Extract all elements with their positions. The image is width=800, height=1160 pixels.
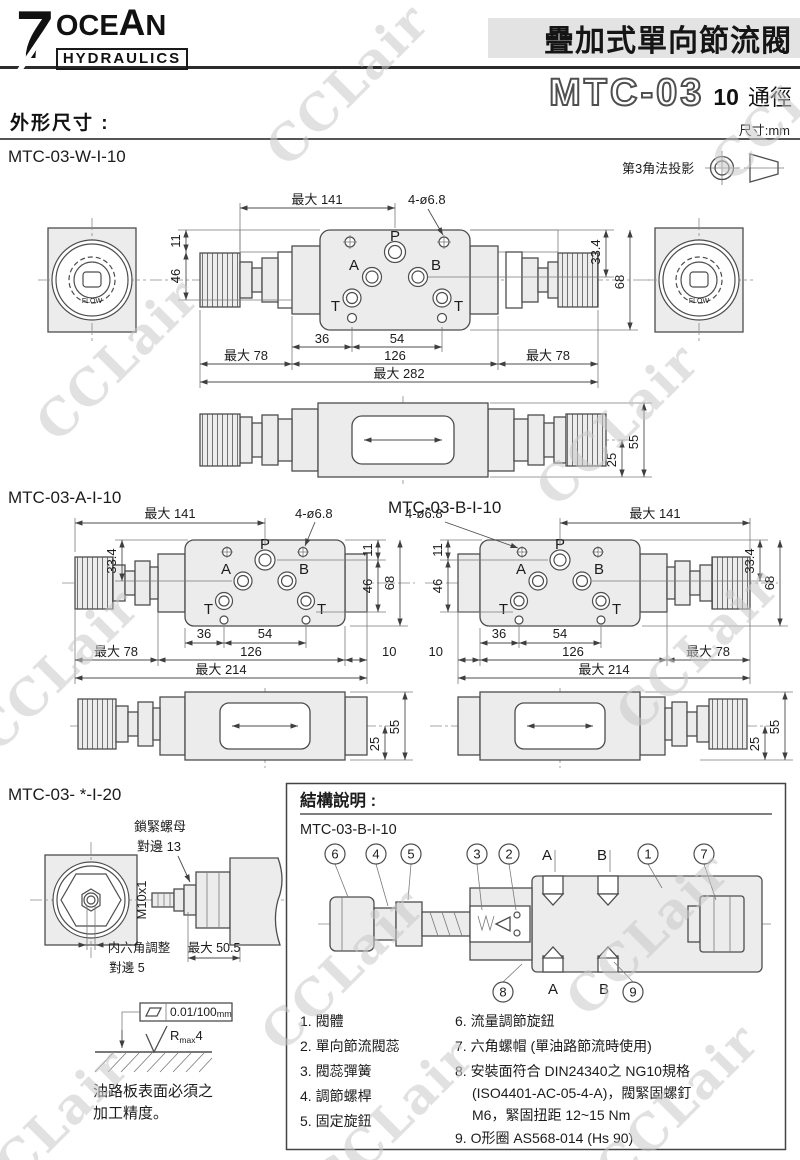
technical-drawings: MTC-03-W-I-10 第3角法投影 [0,0,800,1160]
dim-33-4: 33.4 [742,548,757,573]
logo-seven: 7 [16,6,54,64]
dim-46: 46 [430,579,445,593]
part-item: 8. 安裝面符合 DIN24340之 NG10規格 [455,1063,690,1079]
balloon-6: 6 [331,847,338,862]
dim-11: 11 [168,234,183,248]
dim-10: 10 [382,644,396,659]
dim-11: 11 [360,543,375,557]
surface-note-line2: 加工精度。 [93,1105,168,1122]
dim-54: 54 [390,331,404,346]
dim-55: 55 [767,720,782,734]
projection-label: 第3角法投影 [622,161,694,176]
adj-side-view [140,858,298,945]
balloon-4: 4 [372,847,379,862]
lock-nut-label: 鎖緊螺母 [134,819,186,834]
dim-25: 25 [367,737,382,751]
across-flats-5-label: 對邊 5 [109,961,144,975]
logo-subtitle: HYDRAULICS [56,48,188,70]
balloon-2: 2 [505,847,512,862]
balloon-5: 5 [407,847,414,862]
balloon-7: 7 [700,847,707,862]
dim-46: 46 [168,269,183,283]
w-side-view: 25 55 [200,396,652,484]
part-item: 5. 固定旋鈕 [300,1113,372,1129]
section-title-outline-dims: 外形尺寸 : [10,108,110,135]
dim-68: 68 [762,576,777,590]
drawing-w: MTC-03-W-I-10 第3角法投影 [8,147,784,484]
model-number: MTC-03 [549,72,704,115]
part-item: 7. 六角螺帽 (單油路節流時使用) [455,1038,652,1054]
port-t-label: T [612,601,621,618]
bore-size: 10 [713,84,739,111]
port-a-label: A [516,561,526,578]
port-t-label: T [331,298,340,315]
dim-max78: 最大 78 [224,348,268,363]
catalog-page: 7 OCEAN HYDRAULICS 疊加式單向節流閥 MTC-03 10 通徑… [0,0,800,1160]
dim-max141: 最大 141 [144,506,195,521]
brand-logo: 7 OCEAN HYDRAULICS [16,6,188,70]
dim-126: 126 [384,348,406,363]
part-item: 6. 流量調節旋鈕 [455,1013,555,1029]
dim-126: 126 [562,644,584,659]
dim-max78: 最大 78 [526,348,570,363]
dim-max78: 最大 78 [686,644,730,659]
structure-heading: 結構說明 : [300,790,376,810]
dim-max214: 最大 214 [195,662,246,677]
w-top-view: P A B T T [150,228,650,330]
dim-36: 36 [315,331,329,346]
dim-holes: 4-ø6.8 [295,506,333,521]
unit-note: 尺寸:mm [739,120,790,139]
part-item: 9. O形圈 AS568-014 (Hs 90) [455,1130,633,1146]
knob-flow-text: FLOW [689,298,710,305]
port-b-label: B [594,561,604,578]
balloon-8: 8 [499,985,506,1000]
w-right-end-view: FLOW [645,218,753,342]
surface-note-line1: 油路板表面必須之 [93,1082,213,1100]
dim-10: 10 [429,644,443,659]
surface-finish-note: 0.01/100mm Rmax4 油路板表面必須之 [93,1003,232,1122]
third-angle-projection-symbol: 第3角法投影 [622,151,784,185]
port-t-label: T [454,298,463,315]
dim-max141: 最大 141 [291,192,342,207]
dim-68: 68 [382,576,397,590]
dim-33-4: 33.4 [104,548,119,573]
port-b-label: B [299,561,309,578]
port-a-label: A [349,257,359,274]
section-port-b: B [599,981,609,998]
section-port-b: B [597,847,607,864]
logo-ocean-text: OCEAN [56,8,188,46]
port-t-label: T [204,601,213,618]
part-item: (ISO4401-AC-05-4-A)，閥緊固螺釘 [472,1085,691,1101]
part-item: 1. 閥體 [300,1013,344,1029]
balloon-1: 1 [644,847,651,862]
part-item: M6，緊固扭距 12~15 Nm [472,1107,630,1123]
structure-box: 結構說明 : MTC-03-B-I-10 [287,784,786,1150]
part-item: 2. 單向節流閥蕊 [300,1038,400,1054]
dim-68: 68 [612,275,627,289]
dim-holes: 4-ø6.8 [408,192,446,207]
dim-36: 36 [197,626,211,641]
structure-model: MTC-03-B-I-10 [300,822,397,838]
drawing-a: MTC-03-A-I-10 [8,488,415,768]
hex-adjust-label: 内六角調整 [108,940,171,955]
dim-54: 54 [553,626,567,641]
dim-36: 36 [492,626,506,641]
port-a-label: A [221,561,231,578]
dim-holes: 4-ø6.8 [405,506,443,521]
bore-unit: 通徑 [748,80,792,112]
hatch-lines [95,1053,212,1072]
balloon-3: 3 [473,847,480,862]
dim-max505: 最大 50.5 [188,941,241,955]
section-port-a: A [548,981,558,998]
balloon-9: 9 [629,985,636,1000]
section-port-a: A [542,847,552,864]
knob-flow-text: FLOW [82,298,103,305]
thread-label: M10x1 [134,880,149,919]
drawing-w-label: MTC-03-W-I-10 [8,147,126,166]
port-b-label: B [431,257,441,274]
across-flats-13-label: 對邊 13 [137,839,181,854]
drawing-a-label: MTC-03-A-I-10 [8,488,121,507]
a-side-view: 25 55 [70,688,413,768]
dim-55: 55 [387,720,402,734]
drawing-adjuster: MTC-03- *-I-20 [8,785,298,1122]
dim-54: 54 [258,626,272,641]
w-left-end-view: FLOW [38,218,146,342]
dim-55: 55 [626,435,641,449]
dim-max141: 最大 141 [629,506,680,521]
dim-max78: 最大 78 [94,644,138,659]
part-item: 3. 閥蕊彈簧 [300,1063,372,1079]
port-t-label: T [317,601,326,618]
b-side-view: 25 55 [430,688,793,768]
dim-126: 126 [240,644,262,659]
port-t-label: T [499,601,508,618]
drawing-b: MTC-03-B-I-10 [388,498,793,768]
dim-25: 25 [747,737,762,751]
dim-11: 11 [430,543,445,557]
model-title: MTC-03 10 通徑 [549,72,792,115]
dim-25: 25 [604,453,619,467]
dim-46: 46 [360,579,375,593]
roughness-value: Rmax4 [170,1028,203,1045]
dim-max282: 最大 282 [373,366,424,381]
port-p-label: P [390,228,400,245]
part-item: 4. 調節螺桿 [300,1088,372,1104]
dim-33-4: 33.4 [588,239,603,264]
drawing-adj-label: MTC-03- *-I-20 [8,785,121,804]
dim-max214: 最大 214 [578,662,629,677]
